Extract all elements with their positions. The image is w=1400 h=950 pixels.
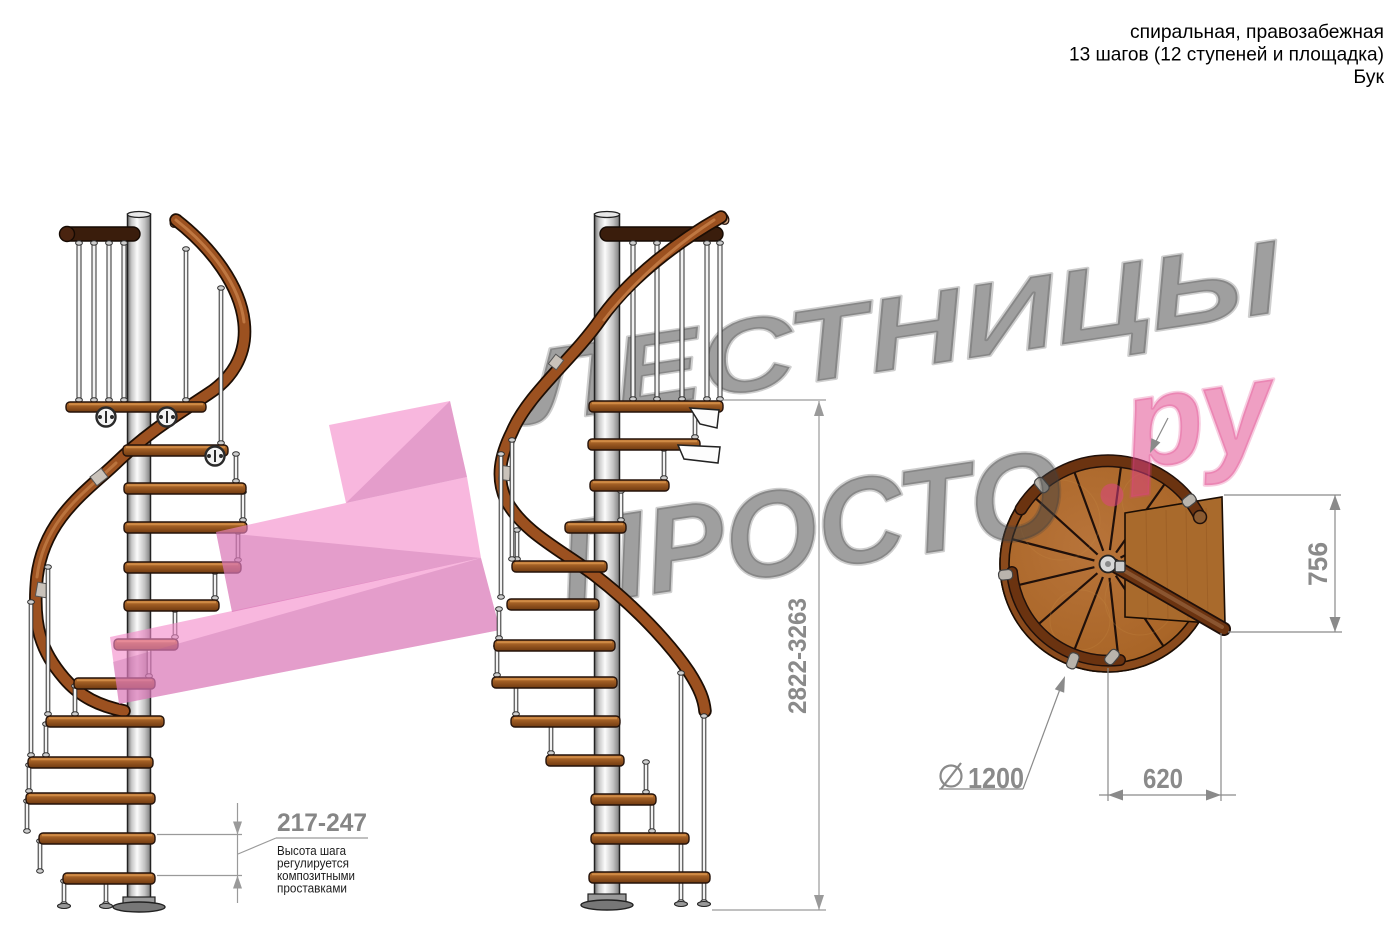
svg-text:спиральная, правозабежная: спиральная, правозабежная [1130,21,1384,43]
svg-text:ру: ру [1110,330,1289,498]
svg-text:1200: 1200 [968,763,1024,795]
svg-text:217-247: 217-247 [277,809,367,837]
svg-text:2822-3263: 2822-3263 [784,598,812,714]
svg-text:13 шагов (12 ступеней и площад: 13 шагов (12 ступеней и площадка) [1069,44,1384,66]
svg-text:756: 756 [1303,542,1333,586]
svg-text:620: 620 [1143,763,1183,794]
svg-text:проставками: проставками [277,881,347,896]
svg-text:Бук: Бук [1353,66,1384,88]
